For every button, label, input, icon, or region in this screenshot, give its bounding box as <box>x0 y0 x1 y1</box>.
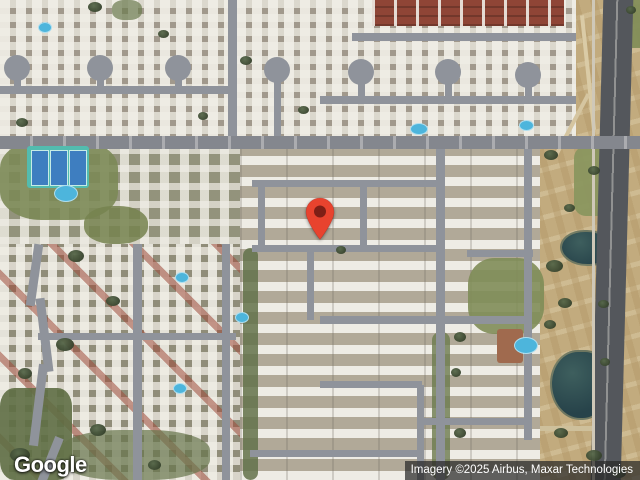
road <box>360 183 367 249</box>
tree <box>554 428 568 438</box>
road <box>252 180 444 187</box>
culdesac <box>87 55 113 81</box>
green-tree-strip <box>243 248 258 480</box>
tree <box>544 320 556 329</box>
road <box>258 183 265 249</box>
pool <box>38 22 52 33</box>
tree <box>158 30 169 38</box>
road <box>417 418 527 425</box>
pool <box>175 272 189 283</box>
tree <box>588 166 600 175</box>
green-patch <box>84 206 148 244</box>
tree <box>106 296 120 306</box>
tree <box>586 450 602 461</box>
google-logo[interactable]: Google <box>14 452 87 478</box>
culdesac <box>4 55 30 81</box>
tree <box>68 250 84 262</box>
culdesac-stem <box>274 80 281 138</box>
map-pin-icon <box>305 197 335 241</box>
road <box>436 148 445 480</box>
road <box>320 316 528 324</box>
tree <box>18 368 32 379</box>
road <box>352 33 576 41</box>
tree <box>544 150 558 160</box>
road <box>320 381 422 388</box>
road <box>307 250 314 320</box>
tree <box>336 246 346 254</box>
culdesac <box>264 57 290 83</box>
culdesac <box>515 62 541 88</box>
highway-shoulder <box>592 0 595 480</box>
culdesac <box>348 59 374 85</box>
district-top-left <box>0 0 236 148</box>
tree <box>451 368 461 377</box>
tree <box>240 56 252 65</box>
tennis-court <box>69 150 87 186</box>
tennis-court <box>50 150 68 186</box>
road <box>222 244 230 480</box>
map-canvas[interactable]: Google Imagery ©2025 Airbus, Maxar Techn… <box>0 0 640 480</box>
tree <box>454 428 466 438</box>
pool <box>519 120 534 131</box>
red-roof-apartments <box>372 0 564 26</box>
map-attribution: Imagery ©2025 Airbus, Maxar Technologies <box>405 461 640 480</box>
road <box>524 148 532 440</box>
road <box>228 0 237 144</box>
tree <box>564 204 575 212</box>
tree <box>558 298 572 308</box>
map-pin-marker[interactable] <box>305 197 335 241</box>
road-main <box>0 136 640 149</box>
tree <box>454 332 466 342</box>
road <box>0 86 236 94</box>
tree <box>198 112 208 120</box>
tree <box>16 118 28 127</box>
pool <box>173 383 187 394</box>
tree <box>298 106 309 114</box>
tree <box>56 338 74 351</box>
pool <box>235 312 249 323</box>
pool <box>514 337 538 354</box>
tree <box>546 260 563 272</box>
culdesac <box>165 55 191 81</box>
pool <box>54 185 78 202</box>
green-trees <box>112 0 142 20</box>
road <box>250 450 422 457</box>
tree <box>88 2 102 12</box>
road <box>133 244 142 480</box>
tree <box>626 6 636 14</box>
tree <box>600 358 610 366</box>
tree <box>598 300 609 308</box>
tennis-court <box>31 150 49 186</box>
road <box>252 245 444 252</box>
culdesac <box>435 59 461 85</box>
tree <box>148 460 161 470</box>
tree <box>90 424 106 436</box>
pool <box>410 123 428 135</box>
